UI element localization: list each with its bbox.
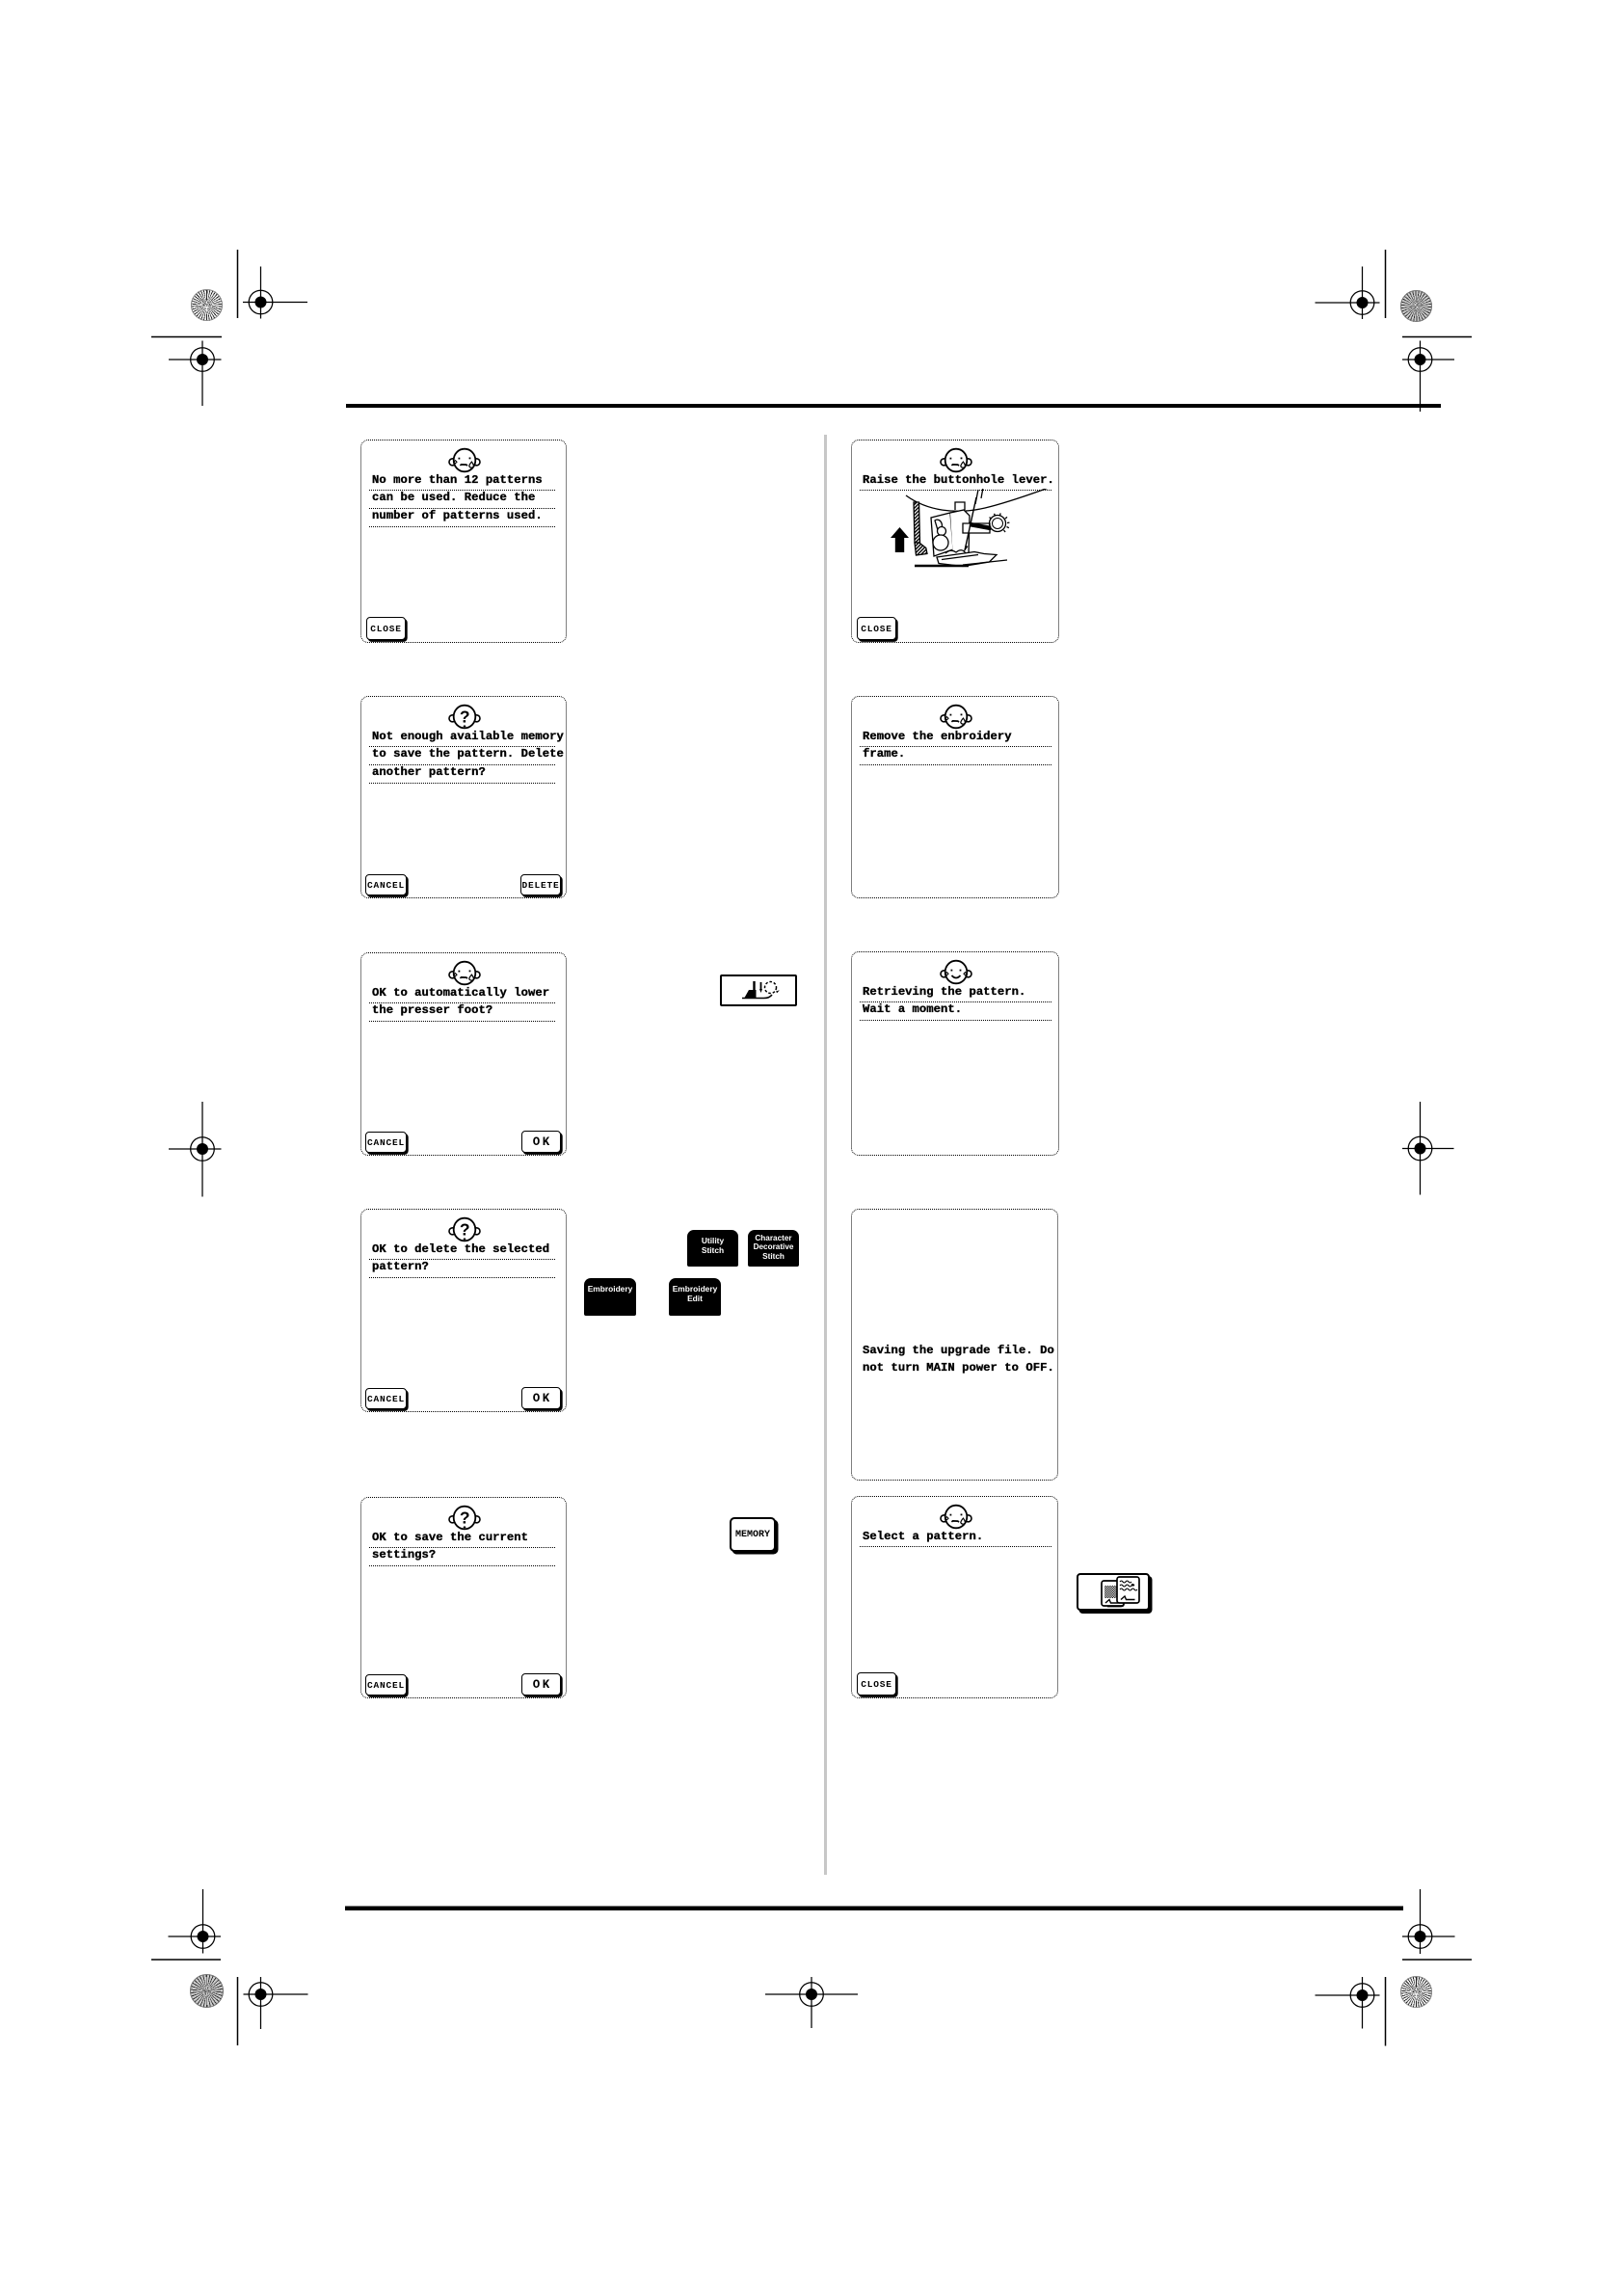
svg-text:?: ? xyxy=(460,1508,470,1528)
svg-text:?: ? xyxy=(460,1220,470,1240)
svg-text:?: ? xyxy=(460,707,470,727)
